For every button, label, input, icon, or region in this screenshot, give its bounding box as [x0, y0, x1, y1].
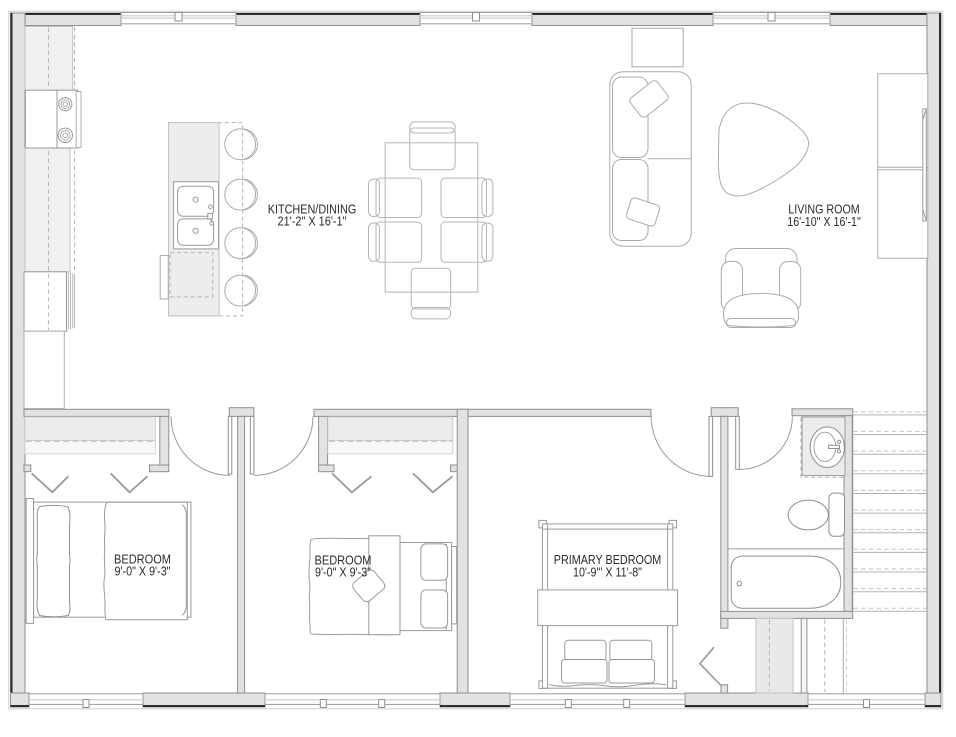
svg-text:9'-0" X 9'-3": 9'-0" X 9'-3" — [115, 564, 171, 579]
svg-text:16'-10" X 16'-1": 16'-10" X 16'-1" — [787, 214, 861, 229]
svg-text:21'-2" X 16'-1": 21'-2" X 16'-1" — [278, 213, 347, 228]
svg-text:9'-0" X 9'-3": 9'-0" X 9'-3" — [315, 564, 371, 579]
svg-text:10'-9"' X 11'-8": 10'-9"' X 11'-8" — [573, 564, 642, 579]
